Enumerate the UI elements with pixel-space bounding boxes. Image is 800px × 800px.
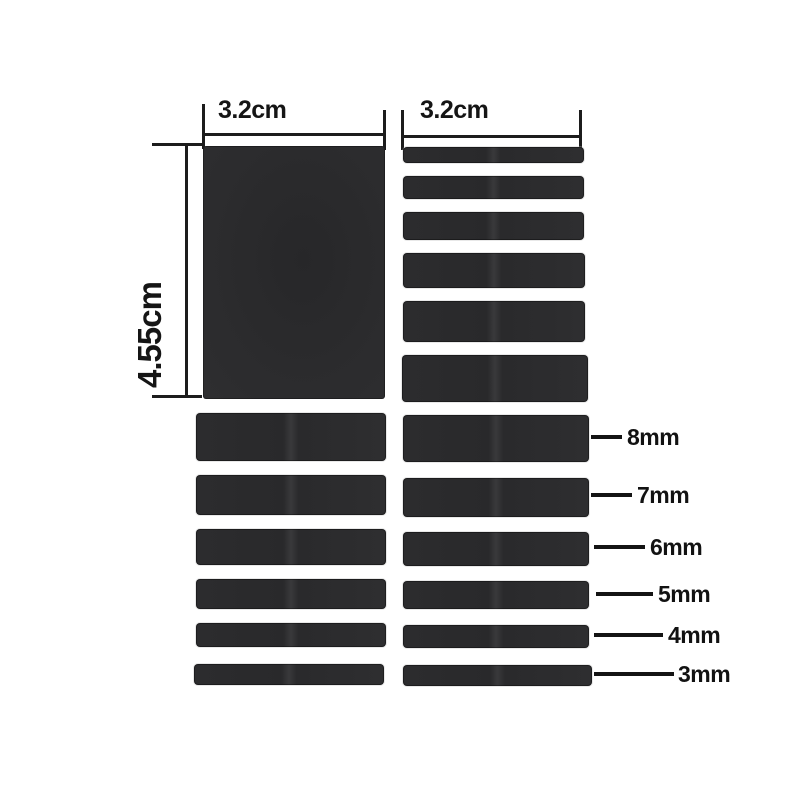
foam-strip-bottom-right-7mm [403, 478, 589, 517]
foam-strip-top-right-8mm [402, 355, 588, 402]
foam-strip-bottom-right-4mm [403, 625, 589, 648]
leader-line-6mm [594, 545, 645, 549]
thickness-label-7mm: 7mm [637, 482, 689, 508]
foam-strip-top-right-5mm [403, 212, 584, 240]
foam-strip-bottom-left-6mm [196, 529, 386, 565]
height-dimension-tick-bottom [152, 395, 202, 398]
foam-strip-bottom-right-3mm [403, 665, 592, 686]
foam-strip-bottom-left-4mm [196, 623, 386, 647]
width-dimension-line-right [402, 135, 582, 138]
thickness-label-6mm: 6mm [650, 534, 702, 560]
width-label-left: 3.2cm [218, 96, 286, 125]
height-dimension-line [185, 146, 188, 397]
foam-strip-bottom-left-8mm [196, 413, 386, 461]
foam-strip-bottom-left-5mm [196, 579, 386, 609]
foam-strip-top-right-6mm [403, 253, 585, 288]
foam-strip-top-right-4mm [403, 176, 584, 199]
height-dimension-tick-top [152, 143, 203, 146]
thickness-label-8mm: 8mm [627, 424, 679, 450]
foam-strip-bottom-left-3mm [194, 664, 384, 685]
leader-line-7mm [591, 493, 632, 497]
width-dimension-tick-right-start [401, 110, 404, 150]
foam-strip-top-right-7mm [403, 301, 585, 342]
leader-line-3mm [594, 672, 674, 676]
width-dimension-tick-left-end [383, 110, 386, 150]
thickness-label-3mm: 3mm [678, 661, 730, 687]
leader-line-4mm [594, 633, 663, 637]
foam-pad-dimension-diagram: 3.2cm 3.2cm 4.55cm 8mm 7mm 6mm 5mm 4mm 3… [0, 0, 800, 800]
leader-line-5mm [596, 592, 653, 596]
big-foam-pad [203, 146, 385, 399]
thickness-label-5mm: 5mm [658, 581, 710, 607]
foam-strip-bottom-left-7mm [196, 475, 386, 515]
foam-strip-top-right-3mm [403, 147, 584, 163]
height-label-left: 4.55cm [131, 270, 169, 400]
width-dimension-line-left [203, 133, 385, 136]
thickness-label-4mm: 4mm [668, 622, 720, 648]
leader-line-8mm [591, 435, 622, 439]
width-dimension-tick-right-end [579, 110, 582, 150]
foam-strip-bottom-right-5mm [403, 581, 589, 609]
width-label-right: 3.2cm [420, 96, 488, 125]
foam-strip-bottom-right-6mm [403, 532, 589, 566]
foam-strip-bottom-right-8mm [403, 415, 589, 462]
